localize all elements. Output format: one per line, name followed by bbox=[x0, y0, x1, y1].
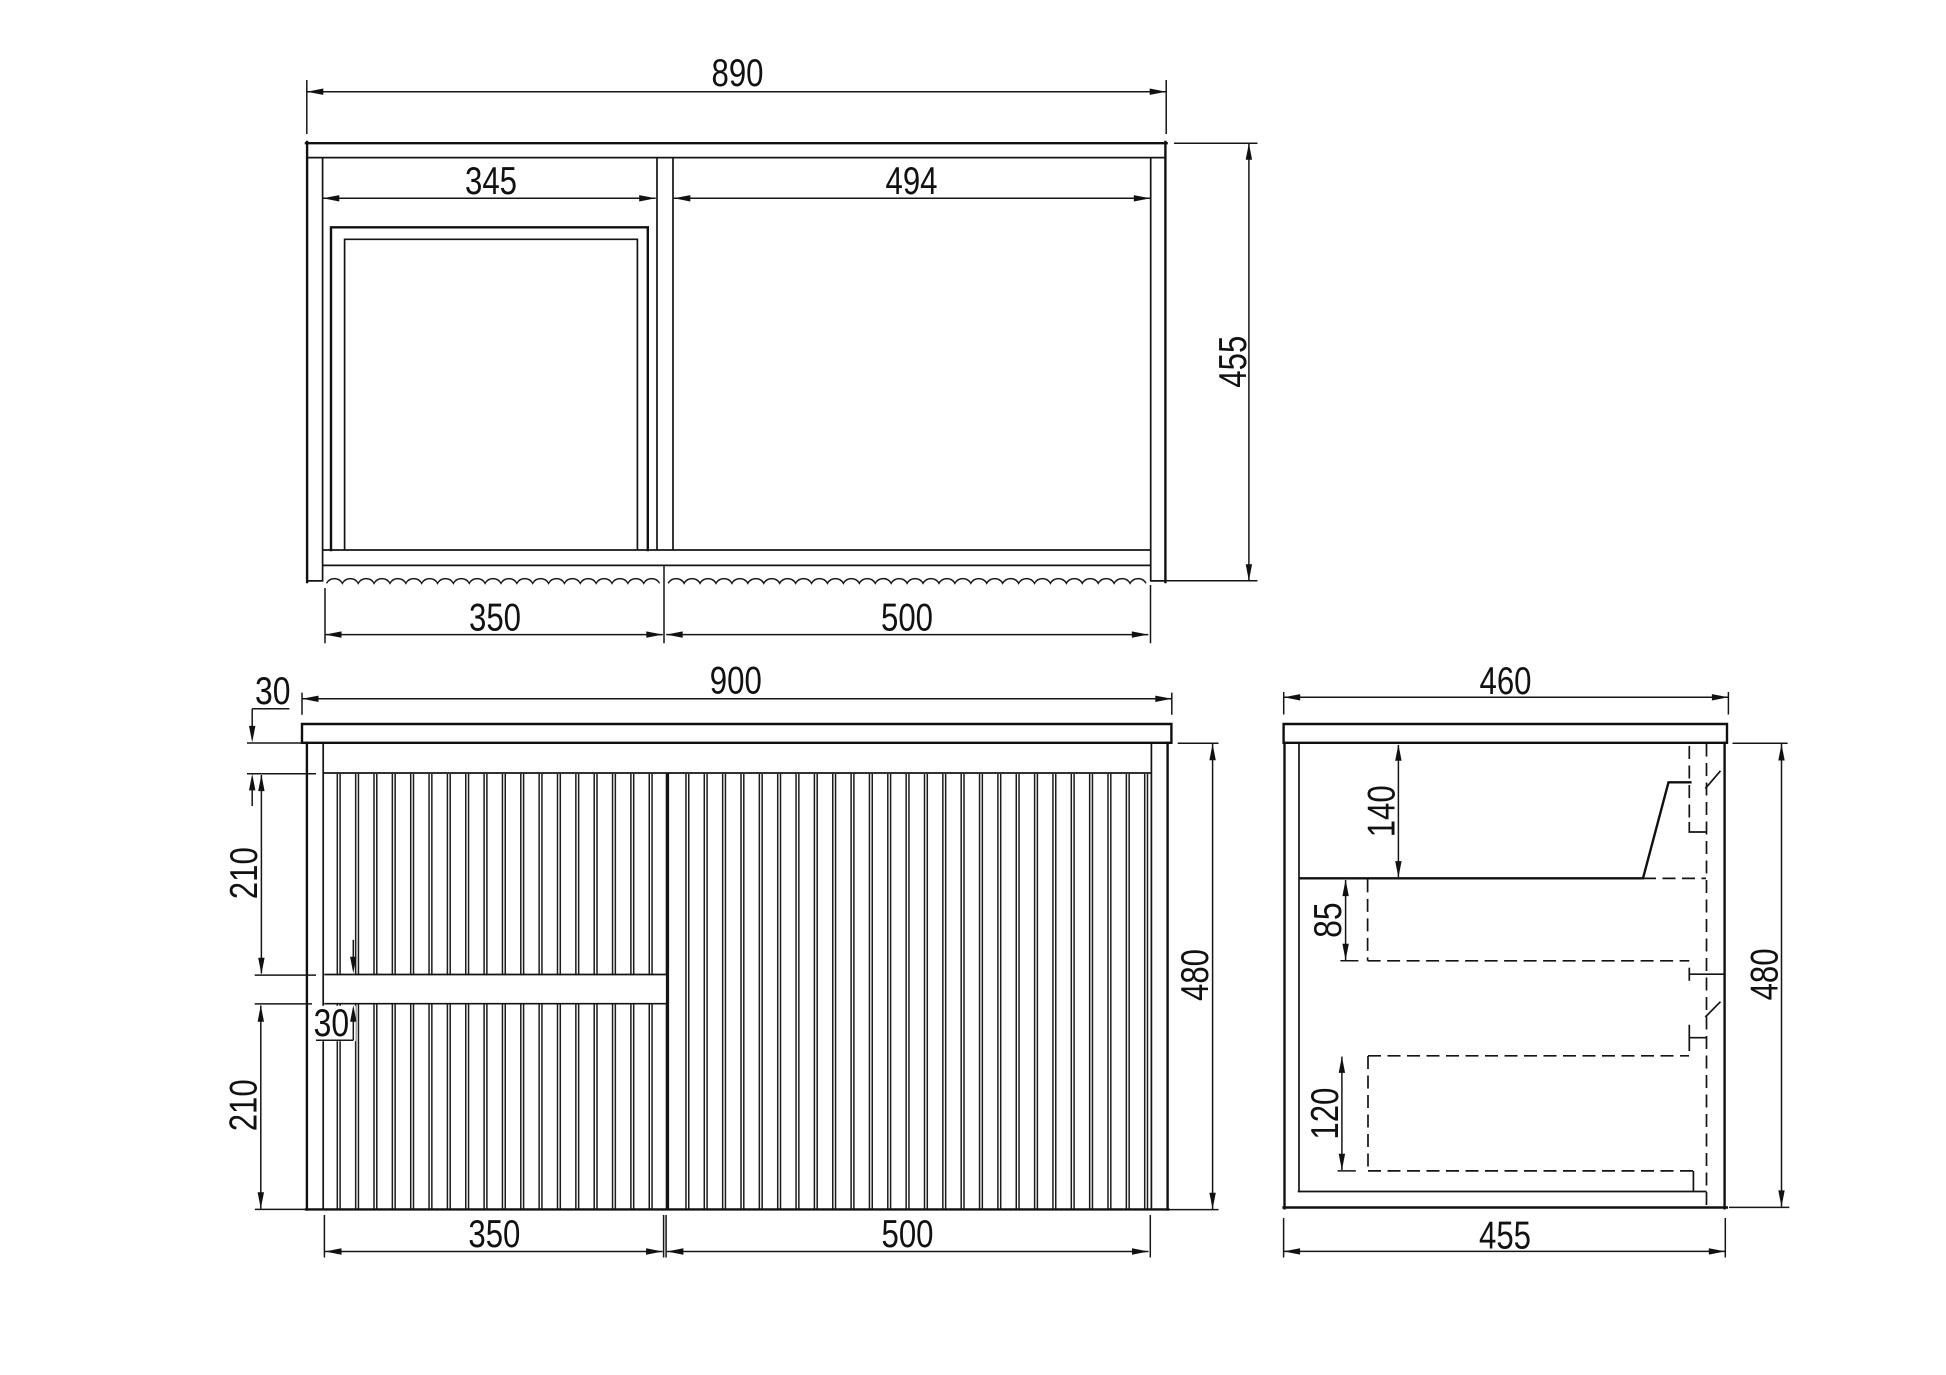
svg-text:500: 500 bbox=[881, 597, 933, 640]
svg-text:140: 140 bbox=[1360, 785, 1403, 837]
svg-text:890: 890 bbox=[712, 52, 764, 95]
svg-text:210: 210 bbox=[223, 847, 266, 899]
svg-text:350: 350 bbox=[468, 1213, 520, 1256]
svg-text:480: 480 bbox=[1743, 948, 1786, 1000]
svg-text:455: 455 bbox=[1479, 1215, 1531, 1258]
svg-text:30: 30 bbox=[255, 670, 291, 713]
svg-text:85: 85 bbox=[1307, 902, 1350, 938]
svg-text:120: 120 bbox=[1304, 1088, 1347, 1140]
svg-text:900: 900 bbox=[710, 660, 762, 703]
svg-text:455: 455 bbox=[1212, 336, 1255, 388]
svg-text:500: 500 bbox=[882, 1213, 934, 1256]
svg-text:30: 30 bbox=[314, 1002, 350, 1045]
svg-text:350: 350 bbox=[469, 597, 521, 640]
svg-text:345: 345 bbox=[465, 160, 517, 203]
svg-text:480: 480 bbox=[1174, 949, 1217, 1001]
svg-text:494: 494 bbox=[886, 160, 938, 203]
svg-text:460: 460 bbox=[1480, 660, 1532, 703]
svg-text:210: 210 bbox=[223, 1079, 266, 1131]
